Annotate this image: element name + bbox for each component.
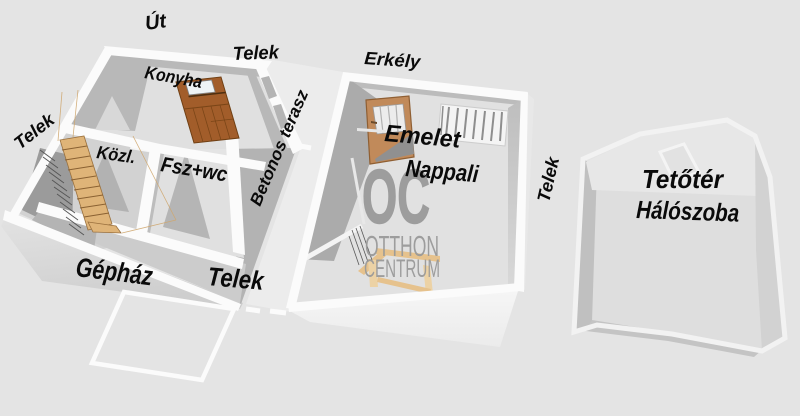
svg-text:Telek: Telek bbox=[206, 261, 266, 296]
svg-text:Hálószoba: Hálószoba bbox=[636, 196, 740, 228]
svg-text:Erkély: Erkély bbox=[364, 48, 422, 72]
svg-text:Telek: Telek bbox=[232, 42, 280, 65]
svg-text:CENTRUM: CENTRUM bbox=[364, 255, 440, 283]
svg-text:Tetőtér: Tetőtér bbox=[642, 164, 725, 194]
